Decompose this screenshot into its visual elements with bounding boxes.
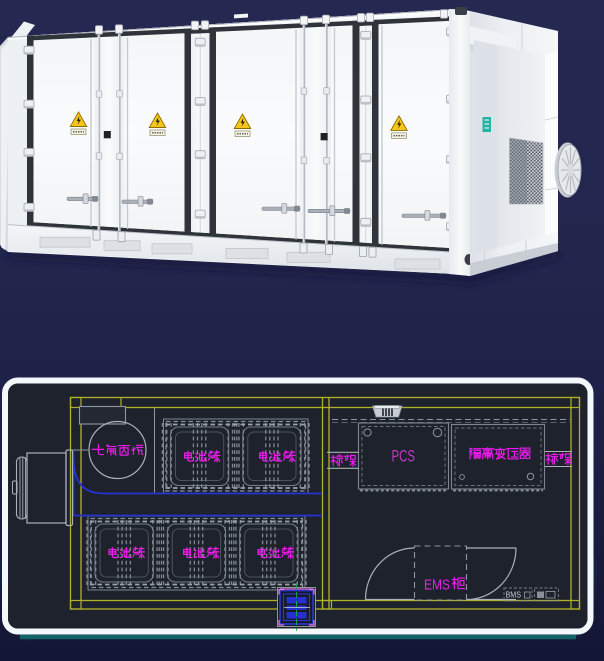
svg-text:EMS: EMS [424, 578, 450, 594]
svg-text:BMS: BMS [506, 591, 522, 600]
svg-text:PCS: PCS [392, 448, 416, 466]
